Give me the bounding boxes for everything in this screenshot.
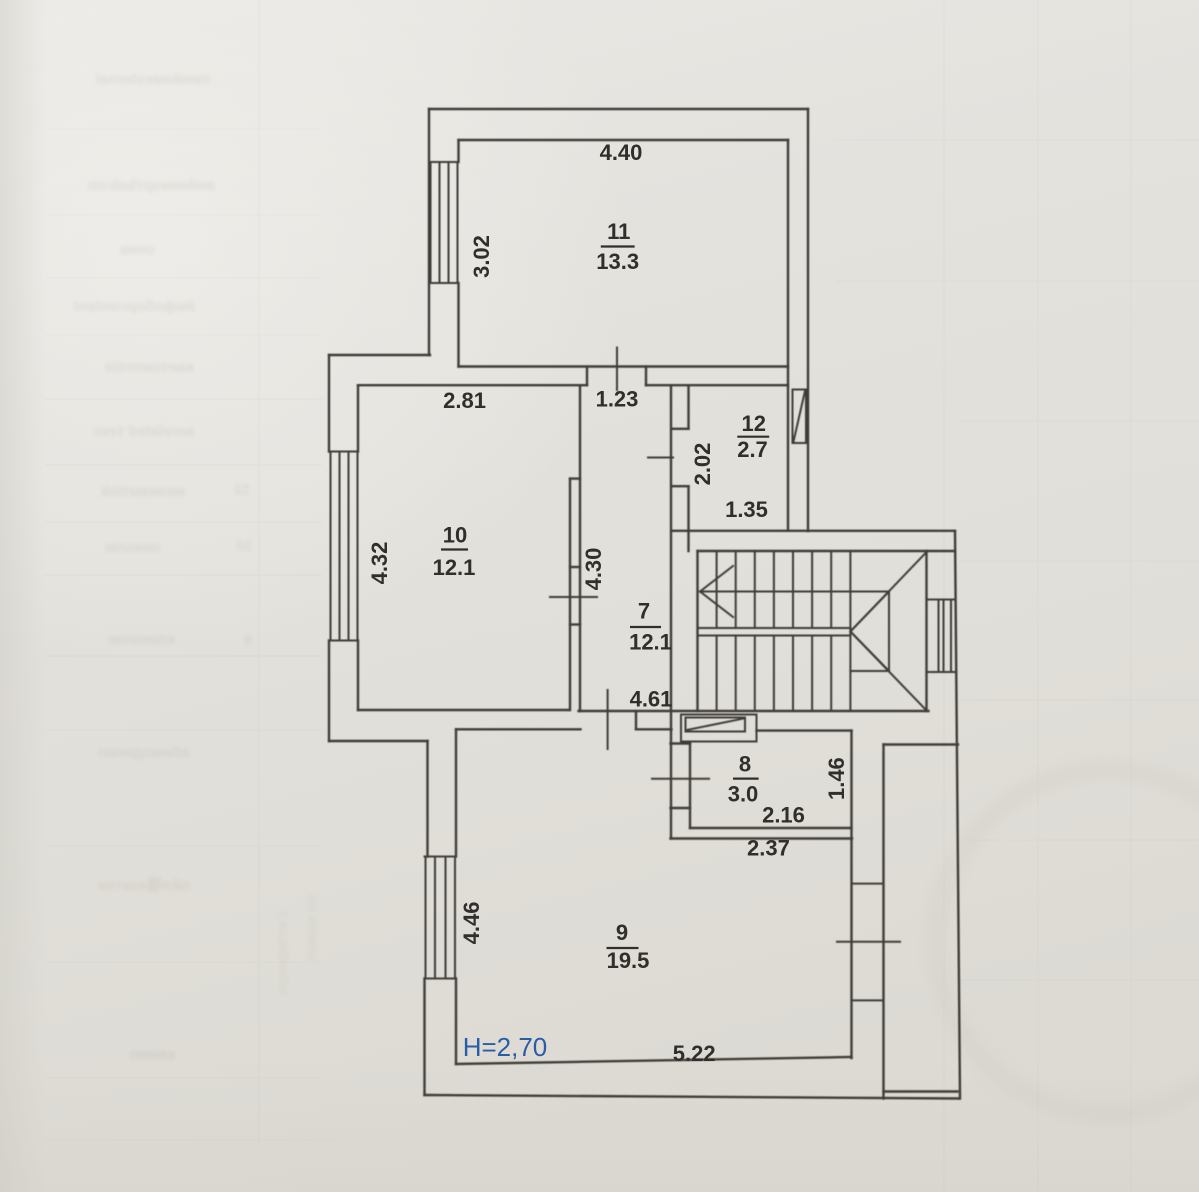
- svg-text:камнп: камнп: [130, 1046, 175, 1063]
- svg-text:4.32: 4.32: [367, 542, 392, 585]
- svg-text:3.02: 3.02: [469, 235, 494, 278]
- svg-text:3.0: 3.0: [728, 782, 759, 807]
- svg-text:1.23: 1.23: [596, 387, 639, 412]
- svg-text:11: 11: [607, 219, 630, 244]
- svg-text:поверх пл: поверх пл: [303, 895, 319, 960]
- svg-text:пинйомexternal: пинйомexternal: [96, 71, 210, 88]
- svg-text:анйомкартbalcon: анйомкартbalcon: [88, 177, 215, 194]
- svg-text:1.35: 1.35: [725, 497, 768, 522]
- svg-text:4.30: 4.30: [581, 548, 606, 591]
- svg-text:перекриття 1: перекриття 1: [274, 910, 290, 995]
- svg-text:менкамтіnk: менкамтіnk: [100, 483, 185, 500]
- svg-text:2.16: 2.16: [762, 803, 805, 828]
- svg-text:анrelated текс: анrelated текс: [93, 423, 195, 440]
- svg-text:абимлднкип: абимлднкип: [98, 744, 190, 761]
- svg-text:4.46: 4.46: [459, 901, 484, 944]
- svg-text:5.22: 5.22: [673, 1041, 716, 1066]
- svg-text:12.1: 12.1: [433, 555, 476, 580]
- svg-text:2.02: 2.02: [690, 443, 715, 486]
- svg-text:1.46: 1.46: [824, 757, 849, 800]
- svg-text:10: 10: [236, 537, 252, 553]
- svg-text:пйл墙нактне: пйл墙нактне: [98, 876, 190, 894]
- svg-text:4.61: 4.61: [630, 687, 673, 712]
- svg-text:2.81: 2.81: [443, 388, 486, 413]
- svg-text:19.5: 19.5: [607, 948, 650, 973]
- svg-text:канรомпröle: канรомпröle: [104, 359, 194, 376]
- svg-text:13.3: 13.3: [596, 249, 639, 274]
- svg-text:2.37: 2.37: [747, 836, 790, 861]
- svg-text:10: 10: [443, 523, 467, 548]
- svg-text:12: 12: [741, 411, 765, 436]
- svg-text:H=2,70: H=2,70: [463, 1032, 548, 1062]
- svg-text:9: 9: [616, 920, 628, 945]
- svg-text:8: 8: [739, 752, 751, 777]
- svg-text:онколм: онколм: [105, 539, 160, 556]
- svg-text:7: 7: [638, 599, 650, 624]
- svg-text:клмненм: клмненм: [109, 631, 175, 648]
- svg-text:2.7: 2.7: [737, 437, 768, 462]
- svg-text:4.40: 4.40: [600, 140, 643, 165]
- svg-text:онкв: онкв: [120, 241, 155, 258]
- svg-text:12.1: 12.1: [629, 630, 672, 655]
- svg-text:йифоберcontent: йифоберcontent: [74, 298, 195, 315]
- svg-text:12: 12: [234, 481, 250, 497]
- svg-text:9: 9: [244, 632, 252, 648]
